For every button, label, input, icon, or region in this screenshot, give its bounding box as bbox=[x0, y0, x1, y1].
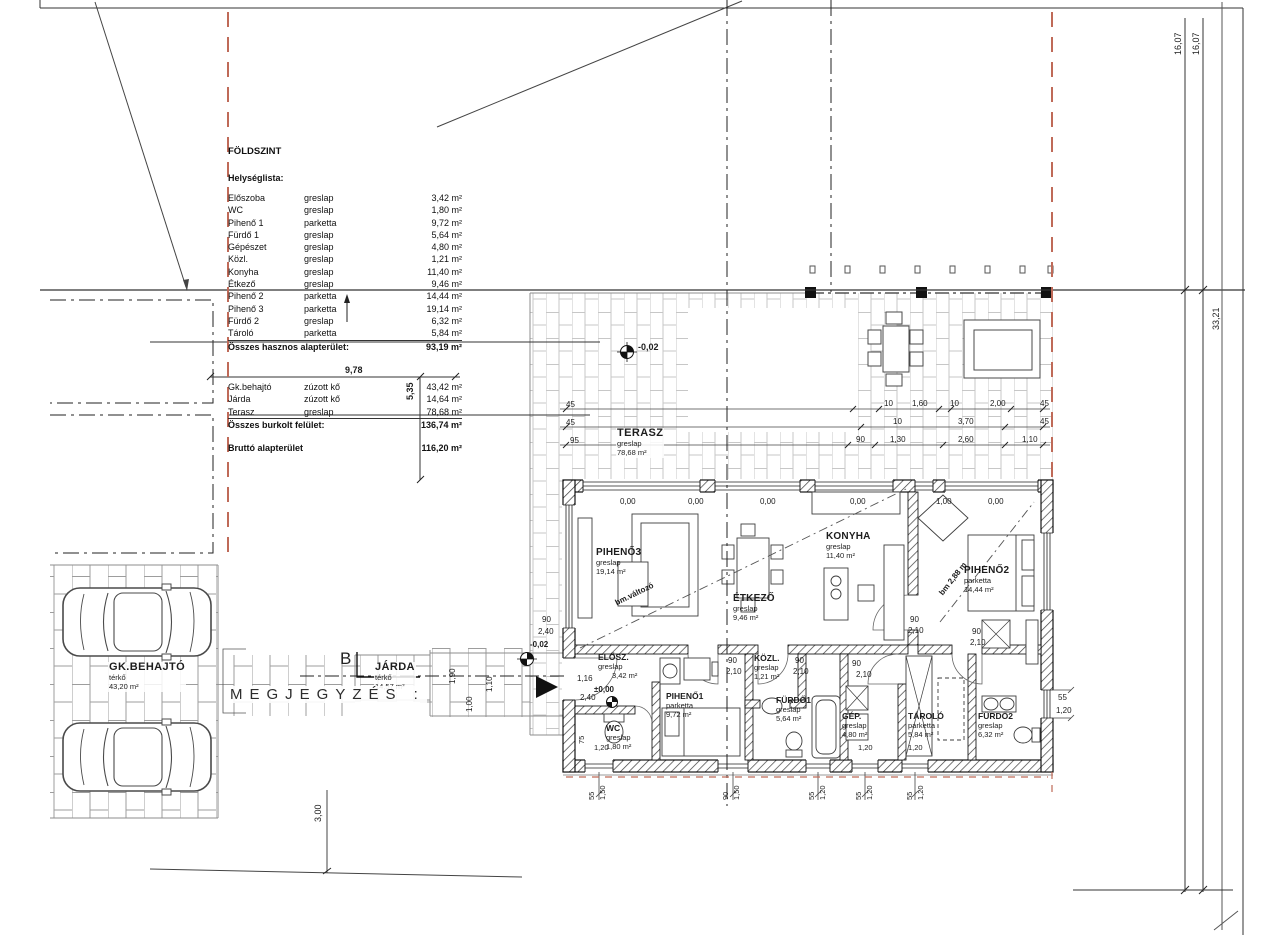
parapet-0-00: 0,00 bbox=[688, 498, 704, 506]
dim-1-30: 1,30 bbox=[890, 436, 906, 444]
table-row: Fürdő 2greslap6,32 m² bbox=[228, 315, 462, 327]
sheet-title: FÖLDSZINT bbox=[228, 146, 462, 157]
room-label-tároló: TÁROLÓ parketta 5,84 m² bbox=[908, 712, 944, 739]
win-1-20: 1,20 bbox=[866, 785, 874, 800]
plan-linework bbox=[0, 0, 1280, 951]
win-1-20: 1,20 bbox=[594, 744, 609, 752]
table-row: Étkezőgreslap9,46 m² bbox=[228, 278, 462, 290]
table-row: Fürdő 1greslap5,64 m² bbox=[228, 229, 462, 241]
site-schedule: Gk.behajtózúzott kő43,42 m² Járdazúzott … bbox=[228, 381, 462, 454]
pergola bbox=[805, 266, 1053, 298]
win-1-20: 1,20 bbox=[858, 744, 873, 752]
sill-55: 55 bbox=[588, 792, 596, 800]
door-height: 2,10 bbox=[793, 668, 809, 676]
room-label-konyha: KONYHA greslap 11,40 m² bbox=[826, 532, 871, 561]
dim-2-60: 2,60 bbox=[958, 436, 974, 444]
table-row: Pihenő 3parketta19,14 m² bbox=[228, 303, 462, 315]
dim-1-00: 1,00 bbox=[466, 696, 474, 712]
door-width: 90 bbox=[728, 657, 737, 665]
room-label-fürdő2: FÜRDŐ2 greslap 6,32 m² bbox=[978, 712, 1013, 739]
table-row: Járdazúzott kő14,64 m² bbox=[228, 393, 462, 405]
room-schedule: FÖLDSZINT Helységlista: Előszobagreslap3… bbox=[228, 146, 462, 353]
room-label-wc: WC greslap 1,80 m² bbox=[606, 724, 631, 751]
dim-3-70: 3,70 bbox=[958, 418, 974, 426]
dim-2-40: 2,40 bbox=[580, 694, 596, 702]
dim-45: 45 bbox=[1040, 418, 1049, 426]
dim-1-60: 1,60 bbox=[912, 400, 928, 408]
win-1-20: 1,20 bbox=[819, 785, 827, 800]
room-label-közl: KÖZL. greslap 1,21 m² bbox=[754, 654, 780, 681]
room-total-row: Összes hasznos alapterület:93,19 m² bbox=[228, 340, 462, 353]
door-height: 2,10 bbox=[856, 671, 872, 679]
door-width: 90 bbox=[972, 628, 981, 636]
door-height: 2,10 bbox=[908, 627, 924, 635]
table-row: Közl.greslap1,21 m² bbox=[228, 253, 462, 265]
dim-45: 45 bbox=[566, 419, 575, 427]
sill-55: 55 bbox=[808, 792, 816, 800]
gross-area-row: Bruttó alapterület116,20 m² bbox=[228, 442, 462, 454]
parapet-0-00: 0,00 bbox=[620, 498, 636, 506]
dim-2-00: 2,00 bbox=[990, 400, 1006, 408]
win-1-50: 1,50 bbox=[599, 785, 607, 800]
dim-10: 10 bbox=[893, 418, 902, 426]
dim-1-10: 1,10 bbox=[1022, 436, 1038, 444]
dim-9-78: 9,78 bbox=[345, 366, 363, 375]
win-90: 90 bbox=[722, 792, 730, 800]
door-width: 90 bbox=[852, 660, 861, 668]
table-row: Pihenő 2parketta14,44 m² bbox=[228, 290, 462, 302]
entrance-height: 2,40 bbox=[538, 628, 554, 636]
room-label-előszoba: ELŐSZ. greslap 3,42 m² bbox=[598, 653, 637, 680]
table-row: Gépészetgreslap4,80 m² bbox=[228, 241, 462, 253]
door-height: 2,10 bbox=[970, 639, 986, 647]
parapet-0-00: 0,00 bbox=[760, 498, 776, 506]
table-row: Teraszgreslap78,68 m² bbox=[228, 406, 462, 418]
sill-55: 55 bbox=[1058, 694, 1067, 702]
parapet-0-00: 0,00 bbox=[850, 498, 866, 506]
parapet-0-00: 0,00 bbox=[988, 498, 1004, 506]
win-1-50: 1,50 bbox=[733, 785, 741, 800]
door-height: 2,10 bbox=[726, 668, 742, 676]
area-label-terasz: TERASZ greslap 78,68 m² bbox=[616, 428, 664, 458]
door-width: 90 bbox=[910, 616, 919, 624]
terrace-blank-area bbox=[688, 308, 858, 432]
table-row: Tárolóparketta5,84 m² bbox=[228, 327, 462, 339]
site-total-row: Összes burkolt felület:136,74 m² bbox=[228, 418, 462, 431]
dim-1-16: 1,16 bbox=[577, 675, 593, 683]
room-label-gép: GÉP. greslap 4,80 m² bbox=[842, 712, 867, 739]
dim-5-35: 5,35 bbox=[406, 382, 415, 400]
elevation-terasz: -0,02 bbox=[638, 343, 659, 352]
sill-55: 55 bbox=[906, 792, 914, 800]
dim-10: 10 bbox=[950, 400, 959, 408]
win-1-20: 1,20 bbox=[1056, 707, 1072, 715]
win-1-20: 1,20 bbox=[917, 785, 925, 800]
dim-45: 45 bbox=[566, 401, 575, 409]
entrance-width: 90 bbox=[542, 616, 551, 624]
sill-55: 55 bbox=[855, 792, 863, 800]
room-label-pihenő1: PIHENŐ1 parketta 9,72 m² bbox=[666, 692, 703, 719]
table-row: Pihenő 1parketta9,72 m² bbox=[228, 217, 462, 229]
parapet-1-00: 1,00 bbox=[936, 498, 952, 506]
sill-75: 75 bbox=[578, 736, 586, 744]
table-row: WCgreslap1,80 m² bbox=[228, 204, 462, 216]
notes-heading: MEGJEGYZÉS : bbox=[228, 686, 427, 703]
elevation-outside: -0,02 bbox=[530, 641, 548, 649]
dim-1-90: 1,90 bbox=[449, 668, 457, 684]
dim-33-21: 33,21 bbox=[1212, 307, 1221, 330]
area-label-gkbehajtó: GK.BEHAJTÓ térkő 43,20 m² bbox=[108, 662, 186, 692]
room-label-pihenő2: PIHENŐ2 parketta 14,44 m² bbox=[964, 566, 1009, 595]
dim-3-00: 3,00 bbox=[314, 804, 323, 822]
dim-16-07-a: 16,07 bbox=[1174, 32, 1183, 55]
win-1-20: 1,20 bbox=[908, 744, 923, 752]
elevation-inside: ±0,00 bbox=[594, 686, 614, 694]
dim-95: 95 bbox=[570, 437, 579, 445]
room-label-fürdő1: FÜRDŐ1 greslap 5,64 m² bbox=[776, 696, 811, 723]
table-row: Konyhagreslap11,40 m² bbox=[228, 266, 462, 278]
table-row: Előszobagreslap3,42 m² bbox=[228, 192, 462, 204]
room-list-heading: Helységlista: bbox=[228, 173, 462, 183]
floor-plan-drawing: FÖLDSZINT Helységlista: Előszobagreslap3… bbox=[0, 0, 1280, 951]
section-marker-b: B bbox=[340, 650, 351, 667]
table-row: Gk.behajtózúzott kő43,42 m² bbox=[228, 381, 462, 393]
room-label-pihenő3: PIHENŐ3 greslap 19,14 m² bbox=[596, 548, 641, 577]
dim-16-07-b: 16,07 bbox=[1192, 32, 1201, 55]
dim-90: 90 bbox=[856, 436, 865, 444]
room-label-étkező: ÉTKEZŐ greslap 9,46 m² bbox=[733, 594, 775, 623]
dim-10: 10 bbox=[884, 400, 893, 408]
dim-1-10: 1,10 bbox=[486, 676, 494, 692]
dim-45: 45 bbox=[1040, 400, 1049, 408]
door-width: 90 bbox=[795, 657, 804, 665]
